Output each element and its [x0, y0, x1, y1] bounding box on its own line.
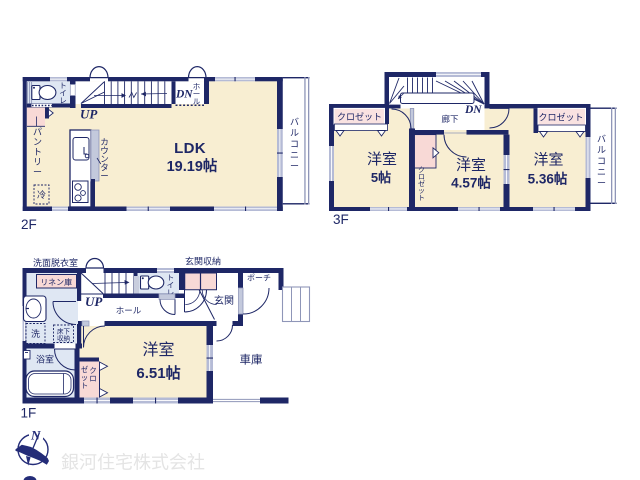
svg-text:3F: 3F	[333, 212, 349, 227]
svg-text:リ: リ	[33, 157, 42, 167]
svg-text:冷: 冷	[37, 189, 46, 200]
svg-text:LDK: LDK	[174, 140, 206, 157]
svg-text:19.19帖: 19.19帖	[167, 157, 218, 175]
svg-text:クロゼット: クロゼット	[538, 112, 583, 123]
svg-text:コ: コ	[290, 139, 299, 149]
svg-text:N: N	[30, 428, 41, 443]
svg-text:バ: バ	[290, 117, 299, 127]
svg-text:5帖: 5帖	[371, 170, 391, 185]
svg-text:クロゼット: クロゼット	[337, 111, 382, 122]
svg-text:玄関: 玄関	[214, 294, 234, 307]
svg-text:UP: UP	[85, 294, 103, 309]
svg-text:ト: ト	[418, 195, 425, 202]
svg-text:4.57帖: 4.57帖	[451, 175, 491, 191]
svg-text:ロ: ロ	[89, 374, 97, 383]
svg-text:コ: コ	[597, 156, 606, 166]
svg-text:ー: ー	[597, 178, 606, 188]
svg-text:洗: 洗	[31, 328, 40, 339]
svg-text:玄関収納: 玄関収納	[185, 256, 221, 267]
svg-text:廊下: 廊下	[441, 114, 459, 124]
svg-text:1F: 1F	[21, 406, 37, 421]
svg-text:5.36帖: 5.36帖	[528, 171, 568, 187]
svg-text:銀河住宅株式会社: 銀河住宅株式会社	[61, 453, 205, 473]
svg-text:ポーチ: ポーチ	[247, 274, 271, 283]
svg-text:ト: ト	[33, 147, 42, 157]
svg-text:DN: DN	[464, 104, 482, 116]
svg-text:洋室: 洋室	[533, 152, 563, 169]
svg-text:収納: 収納	[57, 334, 70, 343]
svg-text:ロ: ロ	[418, 174, 425, 181]
svg-text:床下: 床下	[57, 327, 71, 336]
svg-text:6.51帖: 6.51帖	[136, 364, 180, 382]
svg-text:ー: ー	[33, 167, 42, 177]
svg-text:パ: パ	[33, 127, 42, 137]
svg-text:ッ: ッ	[418, 188, 425, 195]
svg-text:2F: 2F	[21, 217, 37, 232]
svg-text:浴室: 浴室	[36, 354, 54, 365]
svg-text:洋室: 洋室	[142, 341, 174, 359]
svg-text:ル: ル	[597, 145, 606, 155]
svg-text:車庫: 車庫	[240, 353, 263, 367]
svg-text:ト: ト	[81, 381, 89, 390]
svg-text:ニ: ニ	[597, 167, 606, 177]
svg-text:DN: DN	[175, 89, 193, 101]
svg-text:ー: ー	[290, 161, 299, 171]
svg-text:ク: ク	[418, 166, 425, 174]
svg-text:リネン庫: リネン庫	[40, 277, 72, 287]
svg-text:UP: UP	[80, 107, 98, 122]
svg-text:ー: ー	[100, 171, 109, 181]
svg-text:洗面脱衣室: 洗面脱衣室	[33, 257, 78, 268]
svg-text:ル: ル	[290, 128, 299, 138]
svg-text:洋室: 洋室	[367, 151, 397, 168]
svg-text:洋室: 洋室	[456, 157, 486, 174]
svg-text:ゼ: ゼ	[418, 179, 425, 188]
svg-text:ニ: ニ	[290, 150, 299, 160]
svg-text:ホール: ホール	[116, 306, 142, 316]
svg-text:バ: バ	[597, 134, 606, 144]
svg-text:ン: ン	[33, 137, 42, 147]
